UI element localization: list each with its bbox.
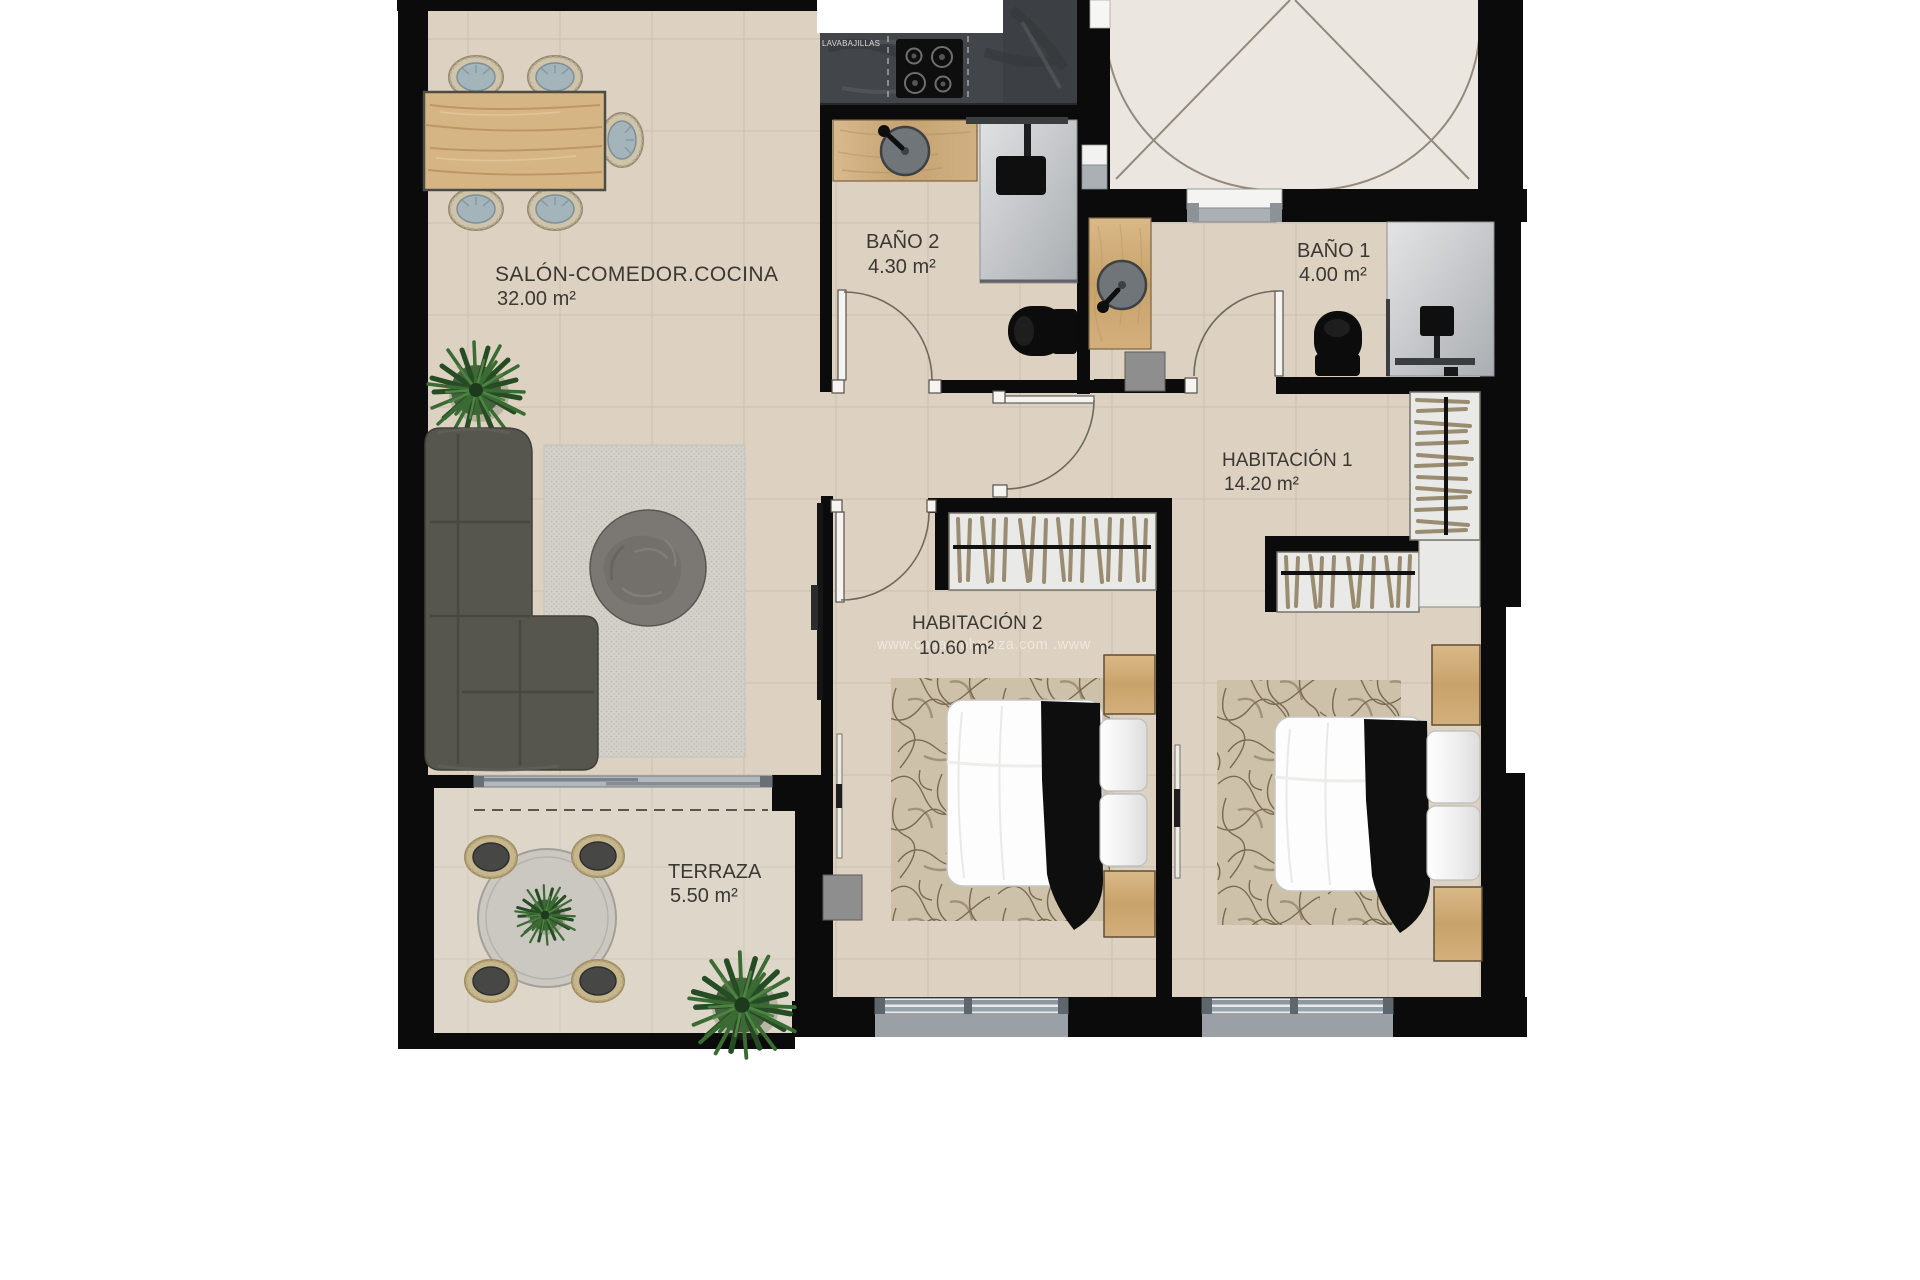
svg-text:4.30 m²: 4.30 m² [868,256,936,278]
svg-text:HABITACIÓN 2: HABITACIÓN 2 [912,612,1043,634]
svg-text:14.20 m²: 14.20 m² [1224,474,1299,495]
svg-text:HABITACIÓN 1: HABITACIÓN 1 [1222,449,1353,471]
svg-text:SALÓN-COMEDOR.COCINA: SALÓN-COMEDOR.COCINA [495,263,778,286]
svg-text:4.00 m²: 4.00 m² [1299,264,1367,286]
svg-text:5.50 m²: 5.50 m² [670,885,738,907]
svg-text:10.60 m²: 10.60 m² [919,638,994,659]
svg-text:BAÑO 2: BAÑO 2 [866,229,939,253]
svg-text:TERRAZA: TERRAZA [668,861,762,883]
svg-text:BAÑO 1: BAÑO 1 [1297,238,1370,262]
svg-text:LAVABAJILLAS: LAVABAJILLAS [822,39,880,48]
svg-text:32.00 m²: 32.00 m² [497,288,576,310]
